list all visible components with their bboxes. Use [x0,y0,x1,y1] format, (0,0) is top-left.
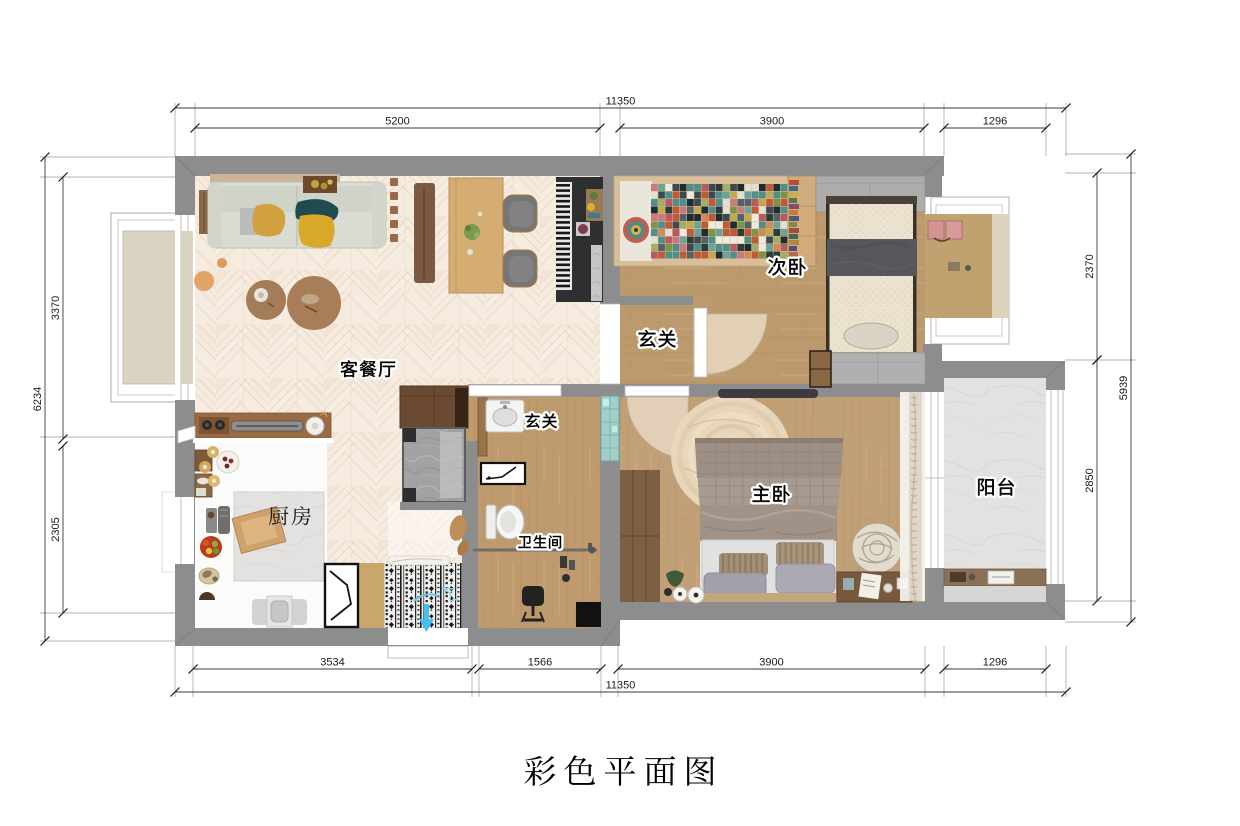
svg-text:5939: 5939 [1118,376,1130,400]
svg-text:3900: 3900 [760,116,784,128]
svg-text:1296: 1296 [983,657,1007,669]
svg-text:6234: 6234 [32,387,44,411]
svg-text:3900: 3900 [759,657,783,669]
svg-text:1566: 1566 [528,657,552,669]
svg-text:3534: 3534 [320,657,344,669]
svg-text:2850: 2850 [1084,468,1096,492]
svg-text:11350: 11350 [606,96,636,108]
svg-text:2305: 2305 [50,517,62,541]
svg-text:11350: 11350 [606,680,636,692]
svg-text:3370: 3370 [50,296,62,320]
svg-text:1296: 1296 [983,116,1007,128]
svg-text:2370: 2370 [1084,254,1096,278]
svg-text:5200: 5200 [385,116,409,128]
